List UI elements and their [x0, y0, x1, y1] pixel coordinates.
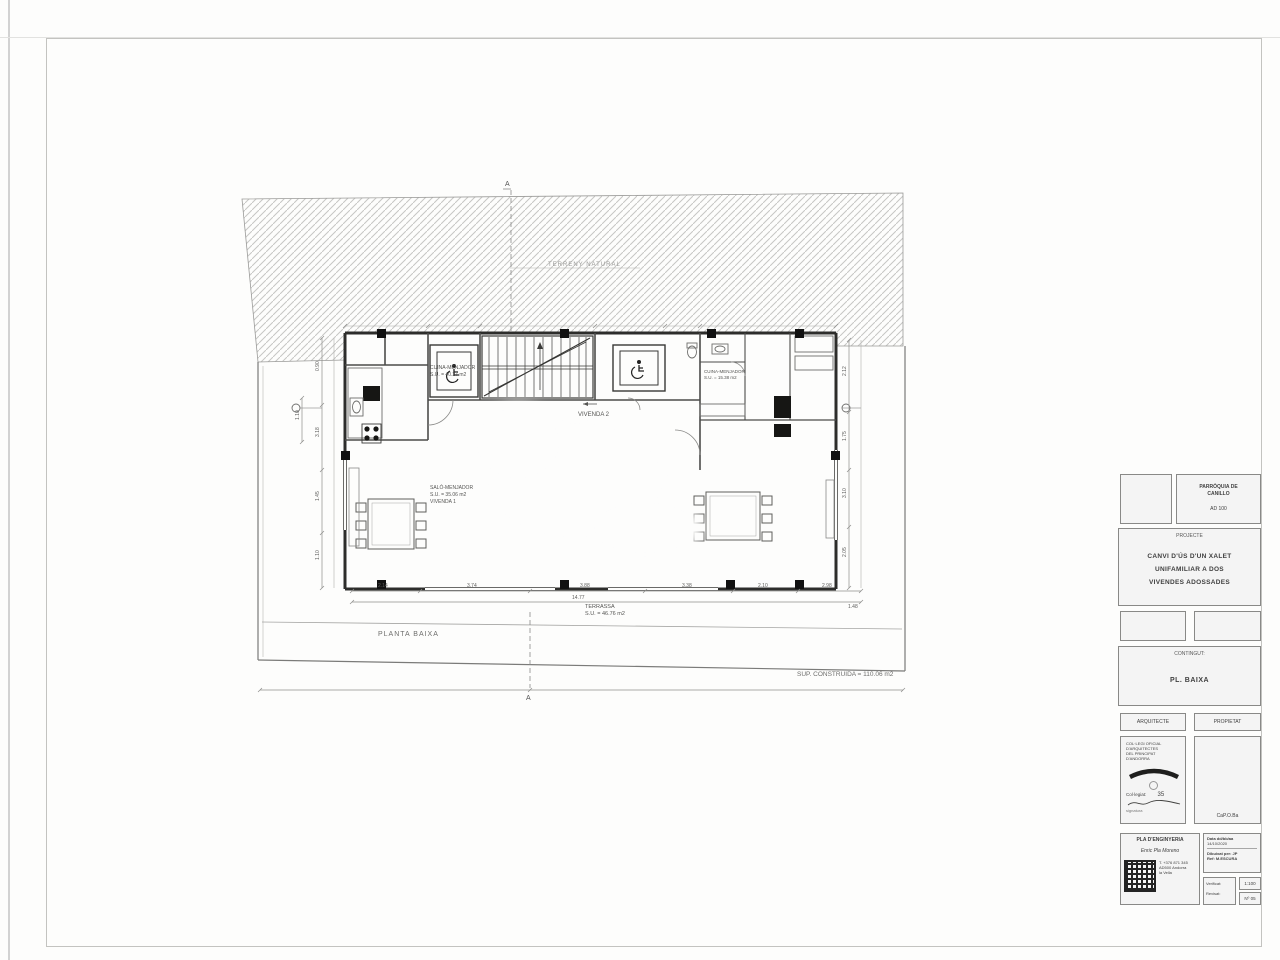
- authority-line1: PARRÒQUIA DE: [1177, 484, 1260, 491]
- dining-left: [349, 468, 426, 549]
- dim-bottom-4: 3.38: [682, 583, 692, 589]
- owner-box: CaP.O.Ba: [1194, 736, 1261, 824]
- verif-line1: Verificat:: [1206, 881, 1233, 886]
- dim-left-4: 1.10: [315, 550, 321, 560]
- small-box-right: [1194, 611, 1261, 641]
- owner-header-box: PROPIETAT: [1194, 713, 1261, 731]
- dim-right-2: 1.75: [842, 431, 848, 441]
- label-cuina2-1: CUINA-MENJADOR: [704, 369, 746, 374]
- firm-box: PLA D'ENGINYERIA Enric Pla Moreno T. +37…: [1120, 833, 1200, 905]
- content-value: PL. BAIXA: [1119, 676, 1260, 685]
- signature-note: signatura: [1126, 808, 1180, 813]
- label-salo-3: VIVENDA 1: [430, 499, 456, 505]
- label-vivenda2: VIVENDA 2: [578, 412, 610, 418]
- label-cuina1-1: CUINA-MENJADOR: [430, 365, 476, 371]
- dim-bottom-6: 2.98: [822, 583, 832, 589]
- floor-plan-drawing: TERRENY NATURAL A: [0, 0, 1280, 960]
- elevator-1: [430, 345, 478, 397]
- content-header: CONTINGUT:: [1119, 647, 1260, 658]
- number-box: Nº 05: [1239, 892, 1261, 905]
- firm-line1: PLA D'ENGINYERIA: [1124, 837, 1196, 844]
- dim-left-3: 1.45: [315, 491, 321, 501]
- project-header: PROJECTE: [1119, 529, 1260, 540]
- ref-label: Ref: M.ESCURA: [1207, 856, 1257, 861]
- dim-right-4: 2.05: [842, 547, 848, 557]
- stamp-arc: [1126, 764, 1182, 780]
- dim-left-2: 3.18: [315, 427, 321, 437]
- kitchen-left: [348, 368, 382, 443]
- terrain-label: TERRENY NATURAL: [548, 262, 621, 268]
- dim-right-end: 1.48: [848, 604, 858, 610]
- label-terrassa-1: TERRASSA: [585, 604, 615, 610]
- authority-logo-box: [1120, 474, 1172, 524]
- section-line-bottom: A: [526, 612, 531, 702]
- label-sup-construida: SUP. CONSTRUIDA = 110.06 m2: [797, 671, 894, 678]
- owner-header: PROPIETAT: [1195, 719, 1260, 726]
- architect-line4: D'ANDORRA: [1126, 756, 1180, 761]
- sheet-number: Nº 05: [1240, 896, 1260, 902]
- scale-value: 1:100: [1240, 881, 1260, 887]
- firm-line2: Enric Pla Moreno: [1124, 848, 1196, 855]
- signature-squiggle: [1126, 798, 1182, 808]
- collegiat-label: Col·legiat:: [1126, 792, 1146, 797]
- scale-box: 1:100: [1239, 877, 1261, 890]
- verif-line2: Revisat:: [1206, 891, 1233, 896]
- label-cuina2-2: S.U. = 15.38 m2: [704, 375, 737, 380]
- architect-header: ARQUITECTE: [1121, 719, 1185, 726]
- dim-right-3: 3.10: [842, 488, 848, 498]
- label-salo-2: S.U. = 35.06 m2: [430, 492, 466, 498]
- label-planta-baixa: PLANTA BAIXA: [378, 631, 439, 638]
- content-box: CONTINGUT: PL. BAIXA: [1118, 646, 1261, 706]
- dim-bottom-2: 3.74: [467, 583, 477, 589]
- scan-whiteout: [472, 403, 701, 558]
- dim-left-extra: 1.10: [295, 410, 301, 420]
- label-cuina1-2: S.U. = 40.27 m2: [430, 372, 466, 378]
- title-block: PARRÒQUIA DE CANILLO AD 100 PROJECTE CAN…: [1118, 470, 1264, 912]
- dim-total: 14.77: [572, 595, 585, 601]
- verification-box: Verificat: Revisat:: [1203, 877, 1236, 905]
- stairs: [482, 336, 593, 398]
- dim-right-1: 2.12: [842, 366, 848, 376]
- project-box: PROJECTE CANVI D'ÚS D'UN XALET UNIFAMILI…: [1118, 528, 1261, 606]
- project-line2: UNIFAMILIAR A DOS: [1119, 563, 1260, 576]
- scanned-sheet: TERRENY NATURAL A: [0, 0, 1280, 960]
- owner-caption: CaP.O.Ba: [1195, 813, 1260, 820]
- kitchen-bath-right: [687, 336, 833, 437]
- authority-line2: CANILLO: [1177, 491, 1260, 498]
- elevator-2: [613, 345, 665, 391]
- authority-line3: AD 100: [1177, 506, 1260, 513]
- dining-right: [694, 480, 834, 541]
- dim-left-1: 0.90: [315, 361, 321, 371]
- meta-box: Data dd/bb/aa 14/10/2020 Dibuixat per: J…: [1203, 833, 1261, 873]
- stamp-circle: [1149, 781, 1158, 790]
- label-salo-1: SALÓ-MENJADOR: [430, 484, 473, 491]
- small-box-left: [1120, 611, 1186, 641]
- firm-contact3: la Vella: [1159, 870, 1188, 875]
- wheelchair-icon-2: [632, 360, 644, 378]
- entry-arrow: [583, 402, 597, 406]
- date-value: 14/10/2020: [1207, 841, 1257, 849]
- architect-header-box: ARQUITECTE: [1120, 713, 1186, 731]
- project-line1: CANVI D'ÚS D'UN XALET: [1119, 550, 1260, 563]
- section-marker-a-top: A: [505, 181, 510, 188]
- label-terrassa-2: S.U. = 46.76 m2: [585, 611, 625, 617]
- collegiat-number: 35: [1158, 792, 1165, 798]
- qr-code: [1124, 860, 1156, 892]
- dim-bottom-5: 2.10: [758, 583, 768, 589]
- dim-bottom-1: 2.14: [378, 583, 388, 589]
- authority-box: PARRÒQUIA DE CANILLO AD 100: [1176, 474, 1261, 524]
- project-line3: VIVENDES ADOSSADES: [1119, 576, 1260, 589]
- dim-bottom-3: 3.88: [580, 583, 590, 589]
- section-marker-a-bottom: A: [526, 695, 531, 702]
- architect-box: COL·LEGI OFICIAL D'ARQUITECTES DEL PRINC…: [1120, 736, 1186, 824]
